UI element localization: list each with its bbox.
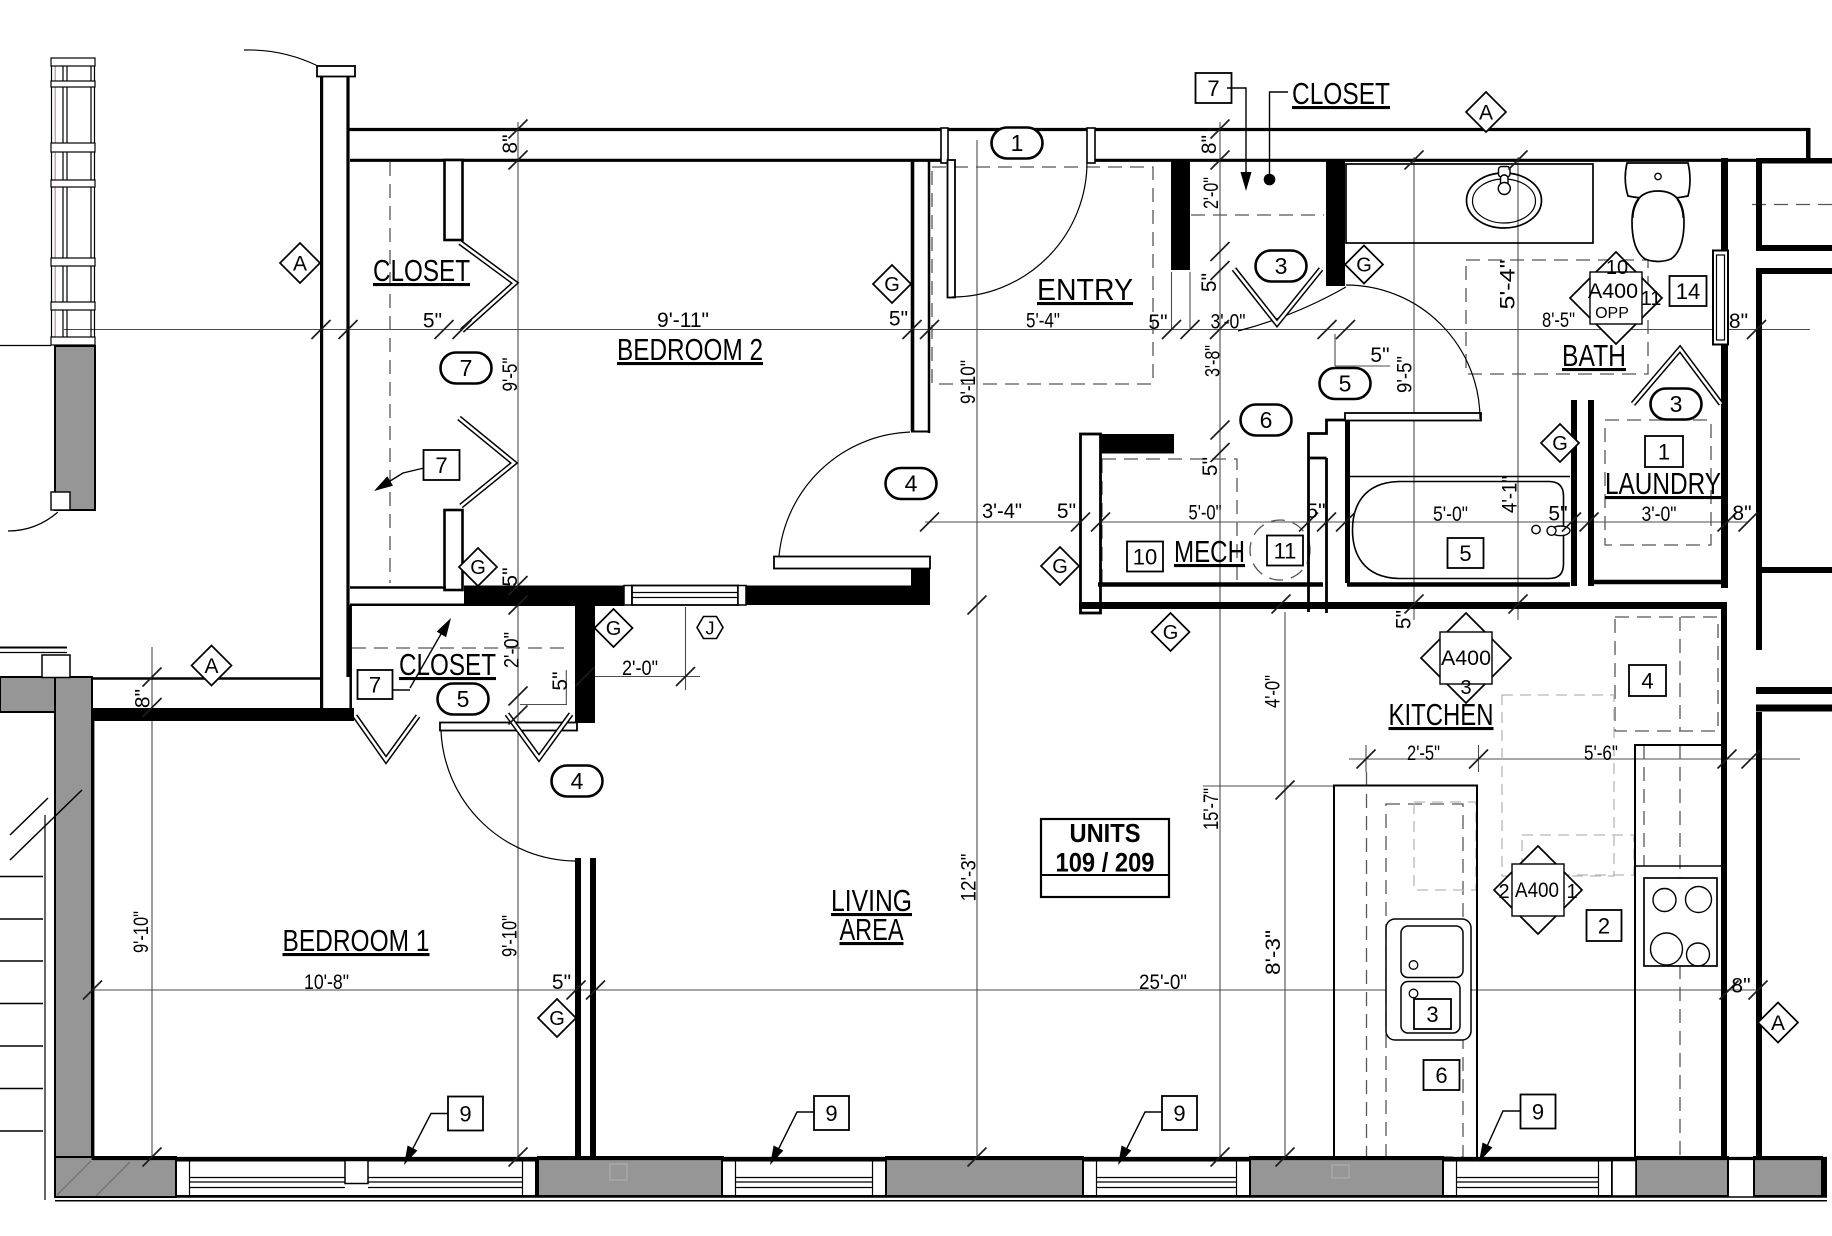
svg-text:9'-10": 9'-10" xyxy=(957,360,980,404)
svg-text:5'-6": 5'-6" xyxy=(1584,742,1618,765)
svg-text:5": 5" xyxy=(499,567,522,586)
svg-text:10: 10 xyxy=(1606,257,1628,279)
svg-text:2'-5": 2'-5" xyxy=(1407,742,1440,765)
svg-text:8": 8" xyxy=(1732,502,1751,525)
svg-text:9'-11": 9'-11" xyxy=(657,309,709,332)
svg-text:5": 5" xyxy=(1148,311,1167,334)
svg-text:9'-5": 9'-5" xyxy=(499,358,522,392)
svg-text:3'-8": 3'-8" xyxy=(1202,345,1225,377)
svg-text:11: 11 xyxy=(1641,288,1662,310)
svg-text:5": 5" xyxy=(1393,610,1416,629)
svg-text:10'-8": 10'-8" xyxy=(304,971,349,994)
svg-text:10: 10 xyxy=(1133,544,1157,569)
svg-text:1: 1 xyxy=(1658,439,1670,464)
svg-text:A: A xyxy=(1479,102,1493,125)
svg-text:KITCHEN: KITCHEN xyxy=(1389,697,1494,732)
svg-text:1: 1 xyxy=(1011,130,1024,156)
svg-text:8": 8" xyxy=(1198,135,1221,154)
svg-text:12'-3": 12'-3" xyxy=(958,854,981,902)
svg-text:8": 8" xyxy=(1731,975,1750,998)
svg-text:9'-10": 9'-10" xyxy=(130,911,153,953)
svg-text:BEDROOM 2: BEDROOM 2 xyxy=(617,332,763,367)
svg-text:G: G xyxy=(1356,255,1372,277)
svg-text:A400: A400 xyxy=(1441,647,1491,670)
svg-text:CLOSET: CLOSET xyxy=(1292,76,1390,111)
svg-text:5'-0": 5'-0" xyxy=(1433,503,1468,526)
svg-text:14: 14 xyxy=(1676,279,1700,304)
svg-text:7: 7 xyxy=(1207,76,1219,101)
svg-text:4'-0": 4'-0" xyxy=(1262,675,1285,708)
svg-text:G: G xyxy=(1552,433,1568,455)
svg-text:G: G xyxy=(606,618,622,640)
svg-text:2'-0": 2'-0" xyxy=(501,632,524,668)
svg-text:8": 8" xyxy=(499,134,522,153)
svg-text:A: A xyxy=(1771,1012,1785,1035)
svg-text:3: 3 xyxy=(1460,677,1471,699)
svg-text:4: 4 xyxy=(571,768,584,794)
svg-text:3: 3 xyxy=(1275,253,1288,279)
svg-text:5": 5" xyxy=(552,971,571,994)
svg-text:G: G xyxy=(1163,622,1179,644)
svg-text:4: 4 xyxy=(1641,668,1653,693)
svg-text:2'-0": 2'-0" xyxy=(622,657,658,680)
svg-text:109 / 209: 109 / 209 xyxy=(1056,848,1155,878)
svg-text:5": 5" xyxy=(1306,500,1325,523)
svg-text:9: 9 xyxy=(825,1101,837,1126)
svg-text:5": 5" xyxy=(889,308,908,331)
svg-text:3: 3 xyxy=(1426,1002,1438,1027)
svg-text:ENTRY: ENTRY xyxy=(1037,272,1133,307)
svg-text:MECH: MECH xyxy=(1174,534,1245,569)
svg-text:7: 7 xyxy=(460,355,473,381)
svg-text:G: G xyxy=(549,1008,565,1030)
svg-text:BEDROOM 1: BEDROOM 1 xyxy=(283,923,430,958)
svg-text:2: 2 xyxy=(1498,881,1509,903)
svg-text:5": 5" xyxy=(1370,344,1389,367)
svg-text:AREA: AREA xyxy=(840,912,904,947)
svg-text:5": 5" xyxy=(1548,503,1567,526)
svg-text:CLOSET: CLOSET xyxy=(399,647,496,682)
svg-text:3'-4": 3'-4" xyxy=(982,500,1022,523)
svg-text:9'-10": 9'-10" xyxy=(499,915,522,957)
svg-text:9'-5": 9'-5" xyxy=(1394,356,1417,393)
svg-text:9: 9 xyxy=(1532,1099,1544,1124)
svg-text:8'-5": 8'-5" xyxy=(1542,309,1575,332)
svg-text:J: J xyxy=(706,619,715,639)
svg-text:LAUNDRY: LAUNDRY xyxy=(1605,466,1721,501)
svg-text:5": 5" xyxy=(423,310,442,333)
svg-text:2'-0": 2'-0" xyxy=(1200,177,1223,209)
svg-text:5: 5 xyxy=(457,686,470,712)
svg-text:6: 6 xyxy=(1260,407,1273,433)
svg-text:9: 9 xyxy=(459,1101,471,1126)
svg-text:8'-3": 8'-3" xyxy=(1262,930,1285,975)
svg-text:3: 3 xyxy=(1670,391,1683,417)
svg-text:3'-0": 3'-0" xyxy=(1642,503,1677,526)
svg-text:5'-4": 5'-4" xyxy=(1026,310,1060,333)
svg-text:5: 5 xyxy=(1459,541,1471,566)
svg-text:OPP: OPP xyxy=(1595,305,1629,322)
svg-text:G: G xyxy=(470,557,486,579)
svg-text:15'-7": 15'-7" xyxy=(1200,788,1223,830)
svg-text:A400: A400 xyxy=(1588,280,1638,303)
svg-text:5: 5 xyxy=(1339,371,1352,397)
svg-text:9: 9 xyxy=(1173,1101,1185,1126)
svg-text:5'-4": 5'-4" xyxy=(1497,260,1520,310)
svg-text:5'-0": 5'-0" xyxy=(1189,502,1222,525)
svg-text:5": 5" xyxy=(1198,273,1221,292)
svg-text:G: G xyxy=(884,274,900,296)
svg-text:4'-1": 4'-1" xyxy=(1499,476,1522,513)
svg-text:G: G xyxy=(1052,556,1068,578)
svg-text:CLOSET: CLOSET xyxy=(373,253,470,288)
svg-text:6: 6 xyxy=(1435,1063,1447,1088)
svg-text:A400: A400 xyxy=(1515,879,1559,902)
svg-text:UNITS: UNITS xyxy=(1070,818,1141,848)
svg-text:8": 8" xyxy=(1729,310,1748,333)
svg-text:8": 8" xyxy=(132,689,155,708)
svg-text:7: 7 xyxy=(369,672,381,697)
svg-text:5": 5" xyxy=(1199,457,1222,476)
svg-text:5": 5" xyxy=(1057,500,1076,523)
svg-text:25'-0": 25'-0" xyxy=(1139,971,1187,994)
svg-text:BATH: BATH xyxy=(1562,338,1626,373)
svg-text:5": 5" xyxy=(549,671,572,690)
svg-text:1: 1 xyxy=(1566,881,1577,903)
svg-text:3'-0": 3'-0" xyxy=(1211,311,1246,334)
svg-text:A: A xyxy=(293,253,307,276)
svg-text:7: 7 xyxy=(435,453,447,478)
svg-text:2: 2 xyxy=(1598,913,1610,938)
svg-text:4: 4 xyxy=(905,471,918,497)
svg-text:A: A xyxy=(204,655,218,678)
svg-text:11: 11 xyxy=(1274,538,1297,563)
